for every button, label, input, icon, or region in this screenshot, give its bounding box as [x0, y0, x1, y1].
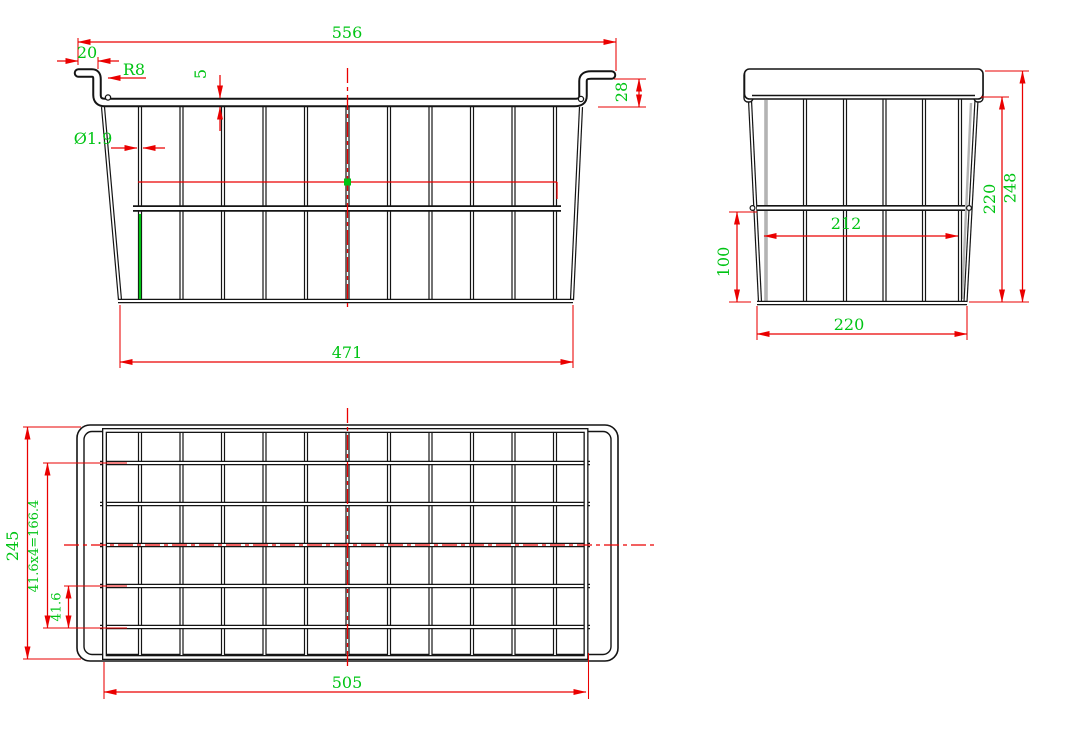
front-view-dimensions	[57, 38, 646, 368]
dim-front-hook-length: 20	[77, 43, 97, 62]
drawing-svg: 556 20 R8 5 Ø1.9 28 471	[0, 0, 1071, 729]
dim-side-wire-length: 212	[831, 214, 862, 233]
dim-side-lower-height: 100	[714, 247, 733, 278]
dim-top-bottom-length: 505	[332, 673, 363, 692]
dim-front-rim-thickness: 5	[191, 69, 210, 79]
dim-side-bottom-width: 220	[834, 315, 865, 334]
front-view: 556 20 R8 5 Ø1.9 28 471	[57, 23, 646, 368]
technical-drawing-canvas: 556 20 R8 5 Ø1.9 28 471	[0, 0, 1071, 729]
dim-top-pitch-equation: 41.6x4=166.4	[27, 500, 42, 593]
front-view-rim	[79, 73, 612, 103]
front-center-marker	[344, 179, 351, 186]
dim-front-bottom-width: 471	[332, 343, 363, 362]
side-view-rim	[744, 69, 983, 210]
side-view: 212 100 220 220 248	[714, 69, 1029, 340]
front-view-wires	[103, 107, 581, 301]
dim-front-wire-diameter: Ø1.9	[74, 129, 113, 148]
dim-side-inner-height: 220	[980, 184, 999, 215]
top-view-grid	[100, 431, 590, 658]
dim-top-pitch: 41.6	[50, 593, 65, 622]
side-view-wires	[750, 99, 977, 303]
dim-front-hook-height: 28	[612, 82, 631, 102]
dim-front-bend-radius: R8	[123, 60, 145, 79]
dim-top-overall-depth: 245	[3, 531, 22, 562]
dim-front-total-width: 556	[332, 23, 363, 42]
top-view: 245 41.6x4=166.4 41.6 505	[3, 408, 656, 699]
dim-side-overall-height: 248	[1001, 173, 1020, 204]
